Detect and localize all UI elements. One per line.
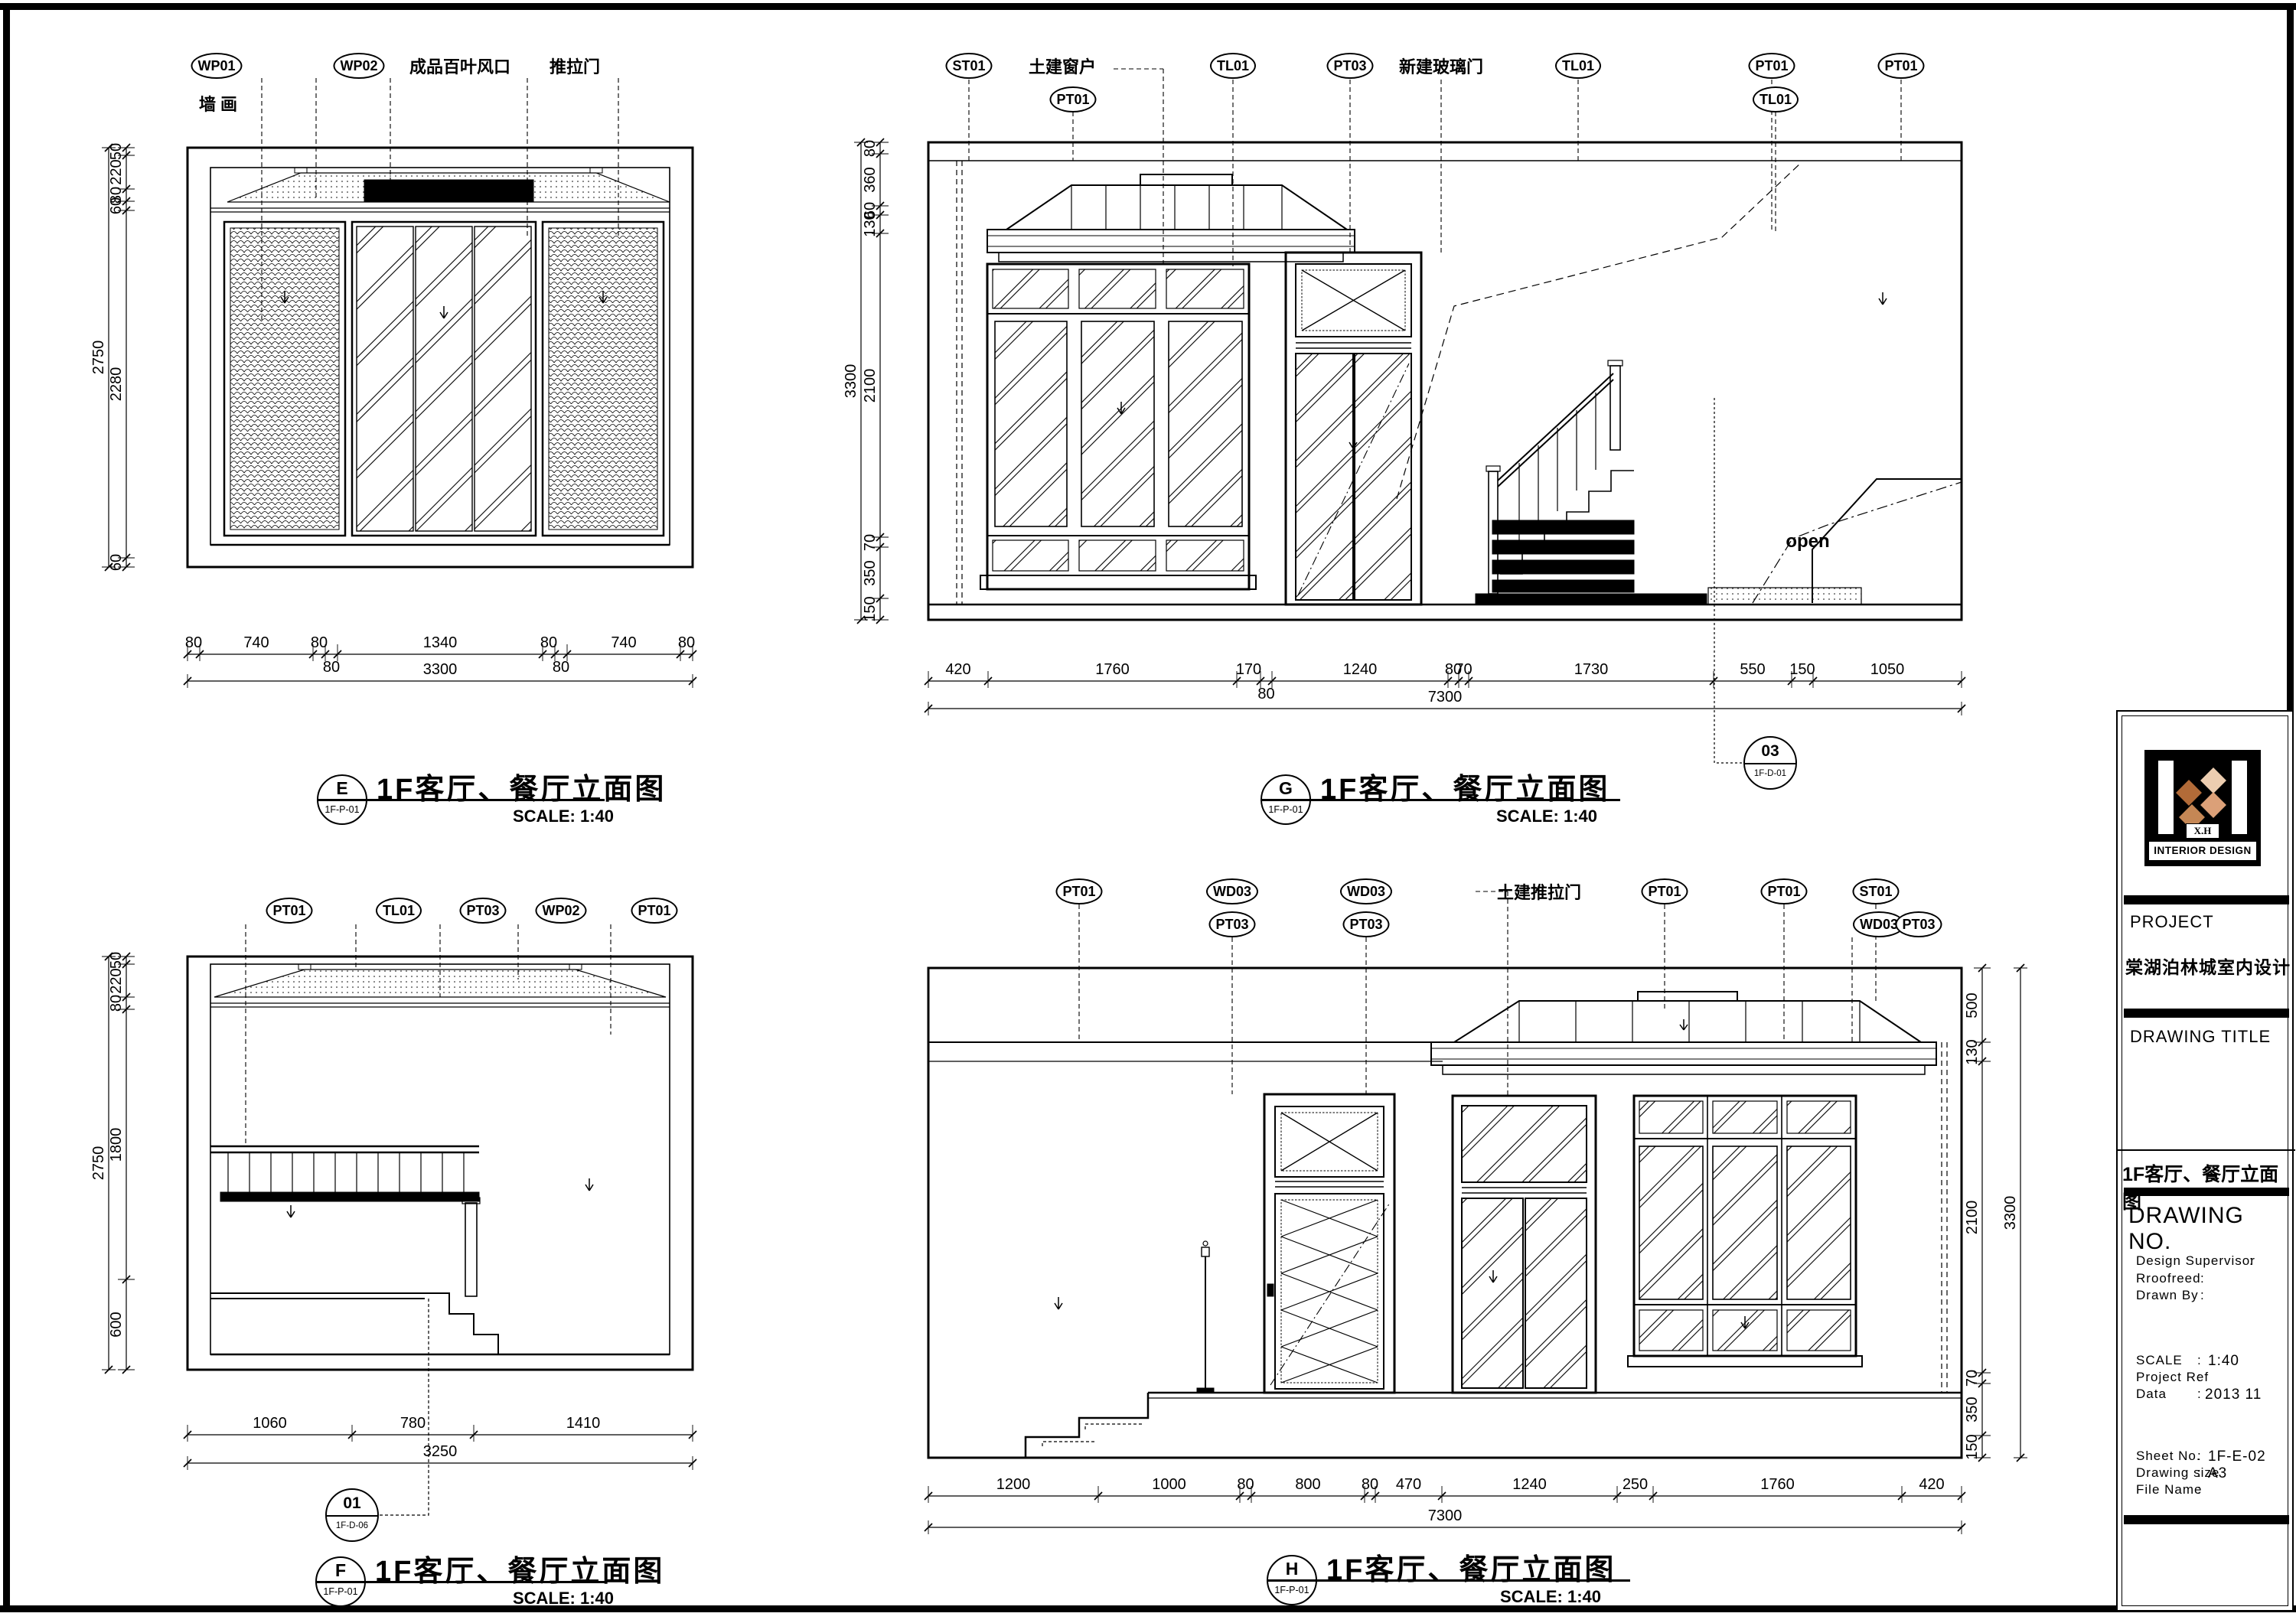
field-sep: : [2197,1353,2202,1368]
dimension-value: 60 [109,197,124,214]
dimension-value: 3300 [843,364,859,399]
dimension-value: 80 [323,660,340,675]
dimension-value: 7300 [1428,689,1463,705]
field-value: A3 [2208,1465,2227,1482]
elevation-h-drawing: PT01 WD03 PT03 WD03 PT03 土建推拉门 PT01 PT01… [842,857,2112,1622]
dimension-value: 1800 [109,1127,124,1162]
callout-pt03-b: PT03 [1342,911,1389,937]
dimension-value: 80 [540,635,557,650]
dimension-value: 170 [1236,662,1261,677]
view-code: 1F-P-01 [325,800,359,820]
callout-pt03-c: PT03 [1895,911,1942,937]
callout-st01: ST01 [1852,878,1899,904]
callout-tl01: TL01 [376,898,422,924]
view-scale: SCALE: 1:40 [1500,1587,1601,1607]
dimension-value: 3300 [423,662,458,677]
elevation-h-linework [842,857,2112,1622]
field-label: Rroofreed [2136,1271,2201,1286]
dimension-value: 1240 [1343,662,1378,677]
dimension-value: 1760 [1095,662,1130,677]
view-scale: SCALE: 1:40 [513,807,614,826]
logo-diamond [2200,792,2226,818]
callout-pt01-b: PT01 [1748,53,1795,79]
dimension-value: 80 [863,139,878,156]
view-letter: F [335,1558,346,1582]
view-scale: SCALE: 1:40 [513,1589,614,1608]
field-value: 2013 11 [2205,1387,2262,1403]
logo-diamond [2200,768,2226,794]
elevation-g-linework [842,46,2036,857]
company-logo: X.H INTERIOR DESIGN [2144,750,2261,866]
elevation-e-drawing: WP01 墙 画 WP02 成品百叶风口 推拉门 E 1F-P-01 1F客厅、… [99,46,735,857]
divider-bar [2124,1515,2289,1524]
dimension-value: 1200 [996,1477,1031,1492]
dimension-lines [1974,964,2027,1462]
view-bubble-h: H 1F-P-01 [1267,1555,1317,1605]
dimension-value: 600 [109,1312,124,1337]
logo-bar-right [2232,761,2247,834]
dimension-value: 7300 [1428,1508,1463,1524]
callout-pt01-a: PT01 [1049,86,1096,112]
logo-bar-left [2158,761,2174,834]
callout-tl01-b: TL01 [1555,53,1601,79]
detail-number: 03 [1761,738,1779,763]
detail-code: 1F-D-01 [1754,764,1786,783]
note-structural-sliding-door: 土建推拉门 [1497,879,1581,904]
thin-divider [2118,1149,2295,1151]
callout-pt03: PT03 [459,898,506,924]
dimension-value: 80 [311,635,328,650]
dimension-value: 130 [863,211,878,236]
dimension-value: 80 [1257,686,1274,702]
field-label: Drawing size [2136,1465,2219,1481]
elevation-f-drawing: PT01 TL01 PT03 WP02 PT01 01 1F-D-06 F 1F… [99,857,735,1622]
view-title: 1F客厅、餐厅立面图 [1326,1546,1616,1588]
view-code: 1F-P-01 [323,1582,357,1602]
dimension-value: 150 [1965,1434,1980,1459]
dimension-value: 250 [1623,1477,1648,1492]
note-open: open [1786,531,1829,552]
dimension-value: 740 [611,635,636,650]
dimension-value: 150 [1789,662,1815,677]
view-bubble-e: E 1F-P-01 [317,774,367,825]
dimension-value: 2280 [109,367,124,402]
view-letter: E [336,776,347,800]
dimension-value: 50 [109,143,124,160]
field-label: SCALE [2136,1353,2183,1368]
field-sep: : [2249,1253,2254,1269]
dimension-value: 2100 [863,368,878,402]
dimension-value: 3250 [423,1444,458,1459]
dimension-value: 1760 [1760,1477,1795,1492]
logo-caption: INTERIOR DESIGN [2149,842,2256,860]
note-new-glass-door: 新建玻璃门 [1399,54,1483,78]
dimension-value: 2750 [91,341,106,375]
dimension-value: 2100 [1965,1200,1980,1234]
dimension-value: 80 [1237,1477,1254,1492]
elevation-g-drawing: ST01 土建窗户 PT01 TL01 PT03 新建玻璃门 TL01 PT01… [842,46,2036,857]
callout-pt01-c: PT01 [1760,878,1807,904]
field-label: Design Supervisor [2136,1253,2255,1269]
callout-wp01: WP01 [191,53,242,79]
dimension-value: 470 [1396,1477,1421,1492]
dimension-value: 80 [185,635,202,650]
note-sliding-door: 推拉门 [550,54,600,78]
dimension-value: 350 [863,560,878,585]
divider-bar [2124,1188,2289,1196]
dimension-value: 60 [109,554,124,571]
dimension-value: 80 [553,660,569,675]
dimension-value: 1050 [1870,662,1905,677]
note-structural-window: 土建窗户 [1029,54,1096,78]
callout-pt01-a: PT01 [1055,878,1102,904]
elevation-f-linework [99,857,735,1622]
dimension-value: 80 [678,635,695,650]
dimension-value: 70 [1455,662,1472,677]
sheet-border-top [0,3,2296,10]
detail-number: 01 [343,1490,360,1515]
view-title: 1F客厅、餐厅立面图 [377,765,666,807]
dimension-value: 420 [1919,1477,1944,1492]
logo-monogram: X.H [2186,823,2219,839]
field-label: Data [2136,1387,2167,1402]
callout-wd03-b: WD03 [1340,878,1392,904]
dimension-value: 350 [1965,1396,1980,1422]
divider-bar [2124,1009,2289,1018]
detail-bubble-03: 03 1F-D-01 [1743,736,1797,790]
dimension-value: 500 [1965,992,1980,1018]
note-louver-vent: 成品百叶风口 [409,54,510,78]
dimension-value: 2750 [91,1146,106,1181]
drawing-no-label: DRAWING NO. [2128,1203,2292,1255]
field-sep: : [2197,1482,2202,1498]
dimension-value: 1410 [566,1416,601,1431]
elevation-e-linework [99,46,735,857]
dimension-value: 360 [863,167,878,192]
drawing-title-label: DRAWING TITLE [2130,1027,2271,1047]
dimension-value: 80 [109,995,124,1012]
view-letter: H [1286,1556,1299,1580]
drawing-sheet: { "sheet": {"paper_color": "#ffffff", "l… [0,0,2296,1623]
callout-tl01-a: TL01 [1210,53,1256,79]
dimension-value: 420 [945,662,970,677]
sheet-border-left [3,3,10,1612]
detail-code: 1F-D-06 [336,1517,368,1535]
project-name: 棠湖泊林城室内设计 [2125,953,2291,979]
title-block: X.H INTERIOR DESIGN PROJECT 棠湖泊林城室内设计 DR… [2116,710,2294,1612]
view-scale: SCALE: 1:40 [1496,807,1597,826]
view-bubble-f: F 1F-P-01 [315,1556,366,1607]
dimension-value: 1240 [1512,1477,1547,1492]
dimension-value: 220 [109,968,124,993]
detail-bubble-01: 01 1F-D-06 [325,1488,379,1542]
view-bubble-g: G 1F-P-01 [1261,774,1311,825]
dimension-value: 1340 [423,635,458,650]
callout-pt03-a: PT03 [1208,911,1255,937]
view-title: 1F客厅、餐厅立面图 [1320,765,1609,807]
field-label: Sheet No. [2136,1449,2201,1464]
dimension-value: 70 [1965,1370,1980,1387]
field-sep: : [2197,1449,2202,1464]
dimension-value: 1000 [1152,1477,1186,1492]
dimension-value: 50 [109,952,124,969]
callout-tl01-c: TL01 [1753,86,1799,112]
view-code: 1F-P-01 [1268,800,1303,820]
logo-diamond [2176,780,2202,806]
dimension-value: 550 [1740,662,1765,677]
field-value: 1F-E-02 [2208,1449,2266,1465]
dimension-value: 740 [243,635,269,650]
field-value: 1:40 [2208,1353,2239,1370]
dimension-value: 130 [1965,1039,1980,1064]
field-sep: : [2197,1465,2202,1481]
field-label: File Name [2136,1482,2202,1498]
dimension-value: 780 [400,1416,426,1431]
dimension-value: 150 [863,596,878,621]
view-code: 1F-P-01 [1274,1580,1309,1600]
field-sep: : [2197,1387,2202,1402]
field-sep: : [2200,1288,2205,1303]
callout-wp02: WP02 [535,898,586,924]
dimension-value: 220 [109,159,124,184]
callout-pt01-b: PT01 [1641,878,1688,904]
view-title: 1F客厅、餐厅立面图 [375,1547,664,1589]
field-sep: : [2200,1271,2205,1286]
divider-bar [2124,895,2289,904]
dimension-value: 1060 [253,1416,287,1431]
callout-pt03: PT03 [1326,53,1373,79]
dimension-value: 800 [1295,1477,1320,1492]
callout-st01: ST01 [945,53,992,79]
dimension-value: 70 [863,533,878,550]
callout-pt01-c: PT01 [1877,53,1924,79]
callout-pt01-b: PT01 [631,898,677,924]
callout-wp02: WP02 [333,53,384,79]
view-letter: G [1279,776,1293,800]
dimension-value: 3300 [2003,1196,2018,1230]
callout-wd03-a: WD03 [1206,878,1258,904]
note-wall-painting: 墙 画 [199,91,237,116]
project-label: PROJECT [2130,912,2214,932]
field-label: Drawn By [2136,1288,2199,1303]
callout-pt01-a: PT01 [266,898,312,924]
dimension-value: 1730 [1574,662,1609,677]
dimension-value: 80 [1362,1477,1378,1492]
field-sep: : [2197,1370,2202,1385]
